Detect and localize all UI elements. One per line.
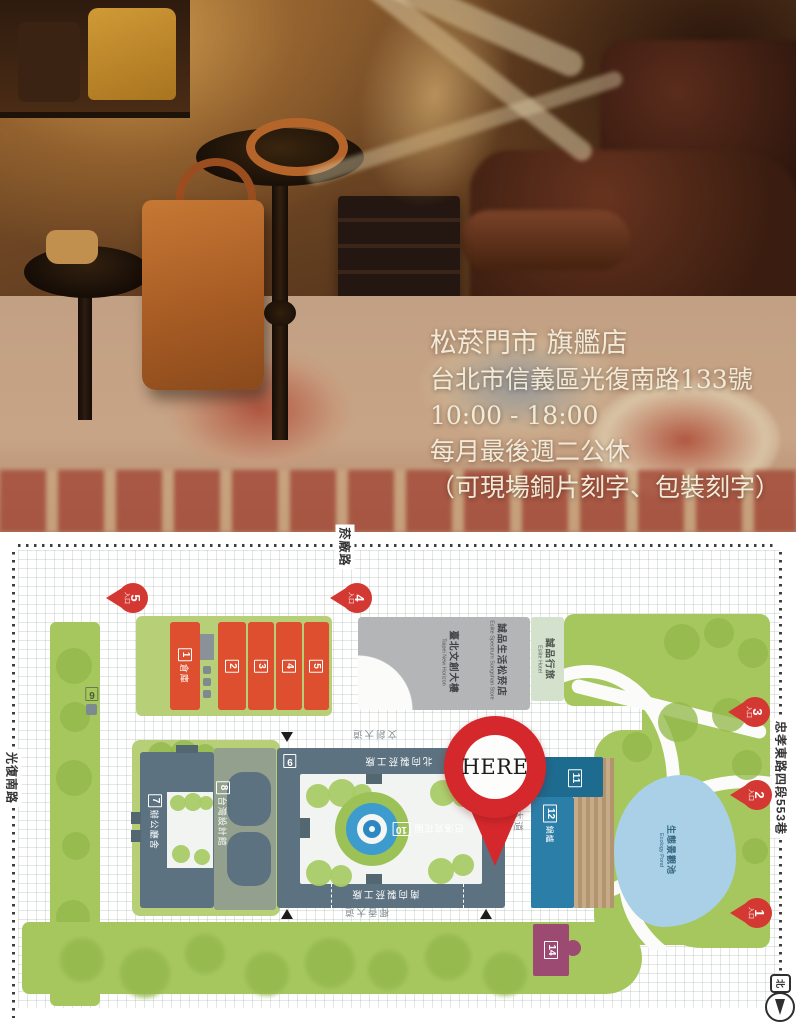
tote-bag — [142, 200, 264, 390]
tree — [732, 750, 762, 780]
tree — [704, 618, 734, 648]
store-photo: 松菸門市 旗艦店 台北市信義區光復南路133號 10:00 - 18:00 每月… — [0, 0, 796, 532]
facility-icon — [203, 678, 211, 686]
compass-dial — [765, 992, 795, 1022]
store-closed-note: 每月最後週二公休 — [430, 434, 780, 470]
road-zhongxiao: 忠孝東路四段553巷 — [772, 718, 791, 838]
tree — [330, 865, 352, 887]
factory-annex — [366, 774, 382, 784]
building-5-badge: 5 — [309, 660, 323, 673]
ecology-pond-label: 生態景觀池 Ecology Pond — [658, 825, 678, 875]
tree — [306, 784, 330, 808]
fountain-center — [369, 826, 375, 832]
building-7-annex — [131, 830, 141, 842]
factory-south-label: 南向製菸工廠 — [350, 888, 419, 902]
tree — [56, 648, 92, 684]
mustard-bag — [88, 8, 176, 100]
entrance-arrow — [281, 909, 293, 919]
tree — [658, 702, 698, 742]
factory-divider — [463, 884, 464, 908]
wenchuang-blvd-label: 文創大道 — [351, 728, 397, 742]
dark-bag — [18, 22, 80, 102]
tree — [305, 938, 355, 988]
building-7-annex — [176, 745, 198, 753]
building-7-label: 7辦公廳舍 — [148, 794, 162, 850]
building-8-hall — [227, 832, 271, 886]
eslite-hotel-label: 誠品行旅 Eslite Hotel — [537, 638, 558, 680]
tree — [245, 952, 289, 996]
here-pin-inner: HERE — [463, 735, 527, 799]
building-2-badge: 2 — [225, 660, 239, 673]
tree — [622, 732, 652, 762]
compass: 北 — [763, 974, 796, 1024]
tree — [199, 796, 213, 810]
store-hours: 10:00 - 18:00 — [430, 398, 780, 434]
building-1-label: 1倉庫 — [178, 648, 192, 684]
entrance-pin-4: 4入口 — [326, 583, 372, 615]
tree — [194, 849, 210, 865]
tree — [738, 638, 768, 668]
building-6-badge: 6 — [86, 687, 99, 701]
park-map: 菸廠路 光復南路 忠孝東路四段553巷 6 1倉庫 2 3 4 5 臺北文創大樓 — [0, 532, 796, 1024]
store-address: 台北市信義區光復南路133號 — [430, 362, 780, 398]
road-yanchang: 菸廠路 — [336, 524, 355, 569]
building-11-badge: 11 — [568, 769, 582, 787]
tree — [425, 934, 471, 980]
tree — [368, 950, 408, 990]
building-8-label: 8台灣設計館 — [216, 781, 230, 847]
entrance-pin-1: 1入口 — [726, 898, 772, 930]
road-north-line — [18, 544, 776, 547]
small-gray-annex — [200, 634, 214, 660]
tree — [56, 760, 92, 796]
tree — [742, 838, 768, 864]
building-8-hall — [227, 772, 271, 826]
armchair-arm — [460, 210, 630, 270]
yexiang-blvd-label: 椰香大道 — [343, 906, 389, 920]
facility-icon — [203, 666, 211, 674]
entrance-pin-5: 5入口 — [102, 583, 148, 615]
store-name: 松菸門市 旗艦店 — [430, 326, 780, 362]
building-9-badge: 9 — [284, 754, 297, 768]
entrance-pin-3: 3入口 — [724, 697, 770, 729]
building-4-badge: 4 — [282, 660, 296, 673]
compass-north-box: 北 — [770, 974, 791, 993]
tree — [664, 624, 700, 660]
factory-north-label: 北向製菸工廠 — [363, 755, 432, 769]
taipei-new-horizon-label: 臺北文創大樓 Taipei New Horizon — [441, 630, 462, 693]
building-7-annex — [131, 812, 141, 824]
tree — [172, 845, 190, 863]
facility-icon — [203, 690, 211, 698]
store-info: 松菸門市 旗艦店 台北市信義區光復南路133號 10:00 - 18:00 每月… — [430, 326, 780, 506]
flyer: 松菸門市 旗艦店 台北市信義區光復南路133號 10:00 - 18:00 每月… — [0, 0, 796, 1024]
here-label: HERE — [462, 755, 529, 779]
tree — [185, 934, 225, 974]
tree — [120, 948, 170, 998]
here-pin: HERE — [440, 714, 550, 872]
entrance-arrow — [281, 732, 293, 742]
factory-annex — [366, 874, 382, 884]
factory-annex — [300, 818, 310, 838]
table-leg-turn — [264, 300, 296, 326]
compass-north-label: 北 — [774, 979, 787, 988]
factory-divider — [331, 884, 332, 908]
building-14-badge: 14 — [544, 941, 558, 959]
entrance-pin-2: 2入口 — [726, 780, 772, 812]
road-guangfu: 光復南路 — [3, 749, 22, 807]
compass-needle — [775, 999, 785, 1015]
side-table-leg — [78, 290, 92, 420]
tree — [62, 832, 90, 860]
entrance-arrow — [480, 909, 492, 919]
facility-icon — [86, 704, 97, 715]
tree — [483, 952, 527, 996]
small-pouch — [46, 230, 98, 264]
building-3-badge: 3 — [254, 660, 268, 673]
tree — [60, 938, 104, 982]
tree — [306, 860, 332, 886]
store-engraving-note: （可現場銅片刻字、包裝刻字） — [430, 470, 780, 506]
eslite-spectrum-label: 誠品生活松菸店 Eslite Spectrum Songshan Store — [489, 620, 510, 700]
building-14-bump — [565, 940, 581, 956]
